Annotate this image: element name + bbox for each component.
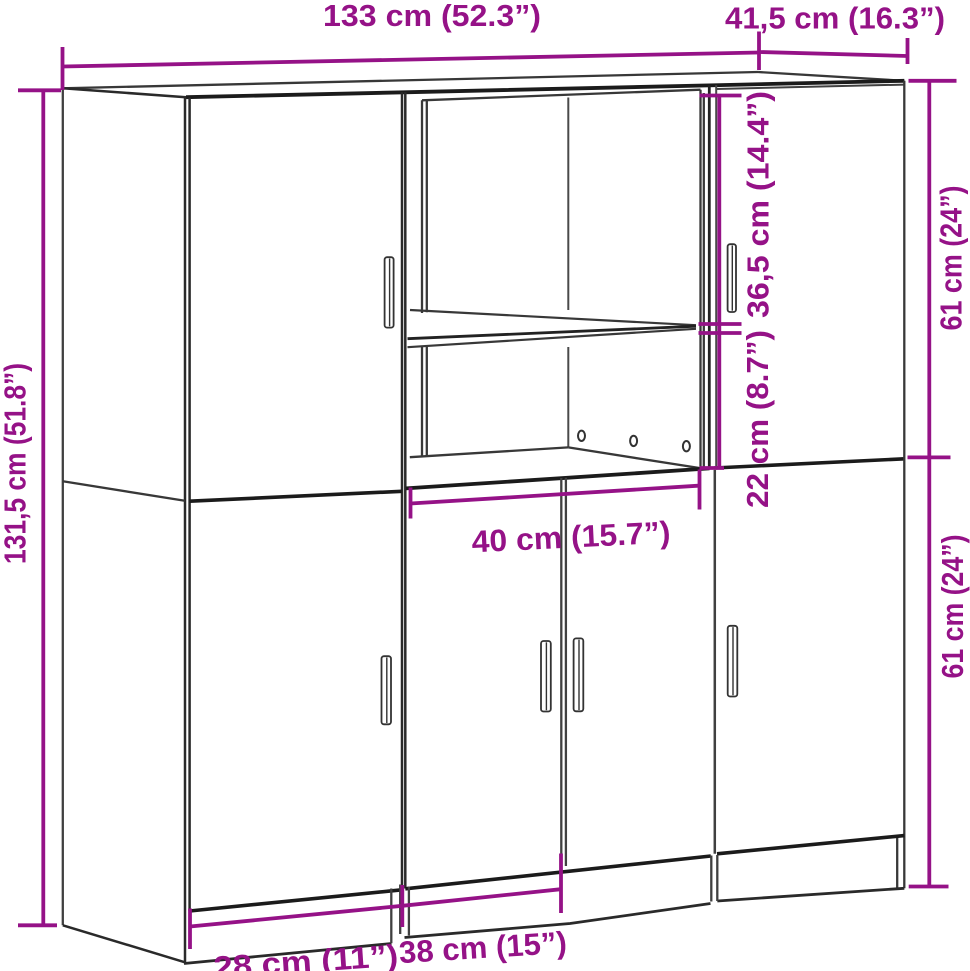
svg-text:36,5 cm (14.4”): 36,5 cm (14.4”): [741, 91, 776, 318]
svg-text:61 cm (24”): 61 cm (24”): [934, 186, 969, 331]
svg-text:133 cm (52.3”): 133 cm (52.3”): [323, 0, 541, 33]
svg-text:22 cm (8.7”): 22 cm (8.7”): [740, 330, 775, 508]
svg-text:131,5 cm (51.8”): 131,5 cm (51.8”): [0, 363, 33, 564]
svg-text:61 cm (24”): 61 cm (24”): [935, 535, 970, 679]
svg-text:41,5 cm (16.3”): 41,5 cm (16.3”): [725, 1, 945, 36]
